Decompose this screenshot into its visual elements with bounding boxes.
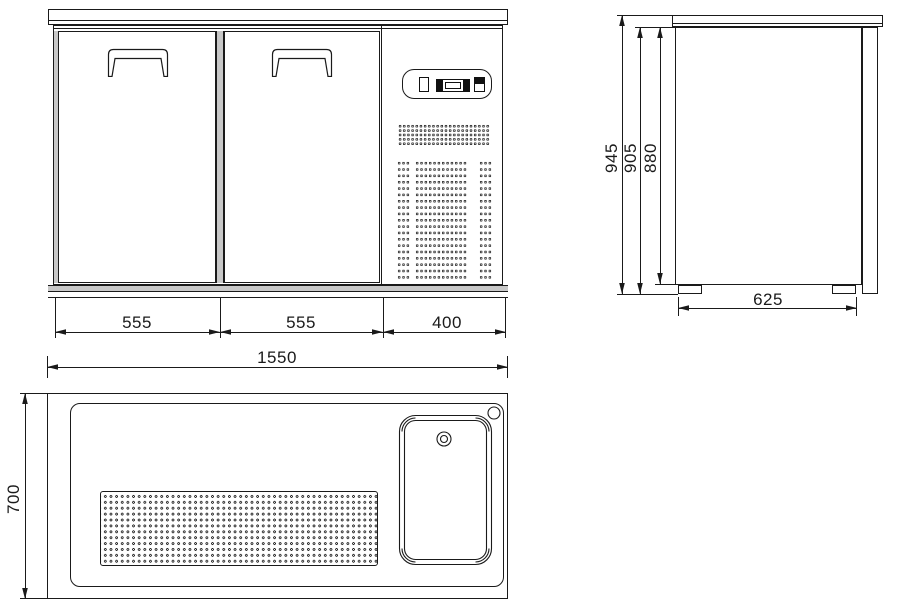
front-countertop bbox=[48, 9, 508, 25]
sink-rim bbox=[400, 416, 492, 565]
door-handle-icon bbox=[107, 48, 169, 77]
sink bbox=[395, 405, 505, 570]
dim-label-height-total: 945 bbox=[603, 138, 621, 178]
technical-drawing-canvas: 555 555 400 945 905 880 625 bbox=[0, 0, 900, 609]
dim-label-compartment: 400 bbox=[407, 314, 487, 331]
control-button[interactable] bbox=[474, 77, 485, 92]
dim-label-depth-total: 700 bbox=[5, 479, 23, 519]
side-countertop-edge-line bbox=[673, 23, 882, 24]
dim-label-door-right: 555 bbox=[261, 314, 341, 331]
control-panel bbox=[402, 69, 492, 99]
display-cap-right bbox=[463, 80, 469, 91]
ventilation-grille bbox=[397, 160, 492, 281]
tap-hole-icon bbox=[488, 407, 500, 419]
dim-label-height-under-top: 905 bbox=[622, 138, 640, 178]
dim-label-door-left: 555 bbox=[97, 314, 177, 331]
temperature-display bbox=[436, 79, 470, 92]
door-handle-icon bbox=[271, 48, 333, 77]
side-foot-front bbox=[678, 285, 702, 294]
dim-label-height-body: 880 bbox=[642, 138, 660, 178]
front-door-divider bbox=[216, 31, 224, 283]
machine-compartment-divider bbox=[381, 25, 382, 285]
sink-bowl bbox=[405, 421, 487, 560]
display-cap-left bbox=[437, 80, 443, 91]
front-base-line bbox=[48, 297, 508, 298]
rear-panel bbox=[862, 27, 878, 294]
dim-label-width-total: 1550 bbox=[247, 349, 307, 366]
display-window bbox=[445, 82, 461, 89]
countertop-edge-line bbox=[49, 20, 507, 21]
side-countertop bbox=[672, 15, 883, 27]
side-foot-rear bbox=[832, 285, 856, 294]
grille-column-mid bbox=[415, 160, 468, 281]
ventilation-grille-top bbox=[398, 124, 490, 146]
drip-tray bbox=[100, 491, 378, 566]
power-switch[interactable] bbox=[419, 77, 429, 92]
side-body bbox=[675, 27, 862, 285]
front-top-rail bbox=[54, 28, 502, 29]
grille-column-right bbox=[479, 160, 492, 281]
grille-column-left bbox=[397, 160, 410, 281]
front-plinth bbox=[48, 285, 508, 292]
sink-drain-icon bbox=[437, 432, 451, 446]
dim-label-depth-feet: 625 bbox=[728, 291, 808, 308]
